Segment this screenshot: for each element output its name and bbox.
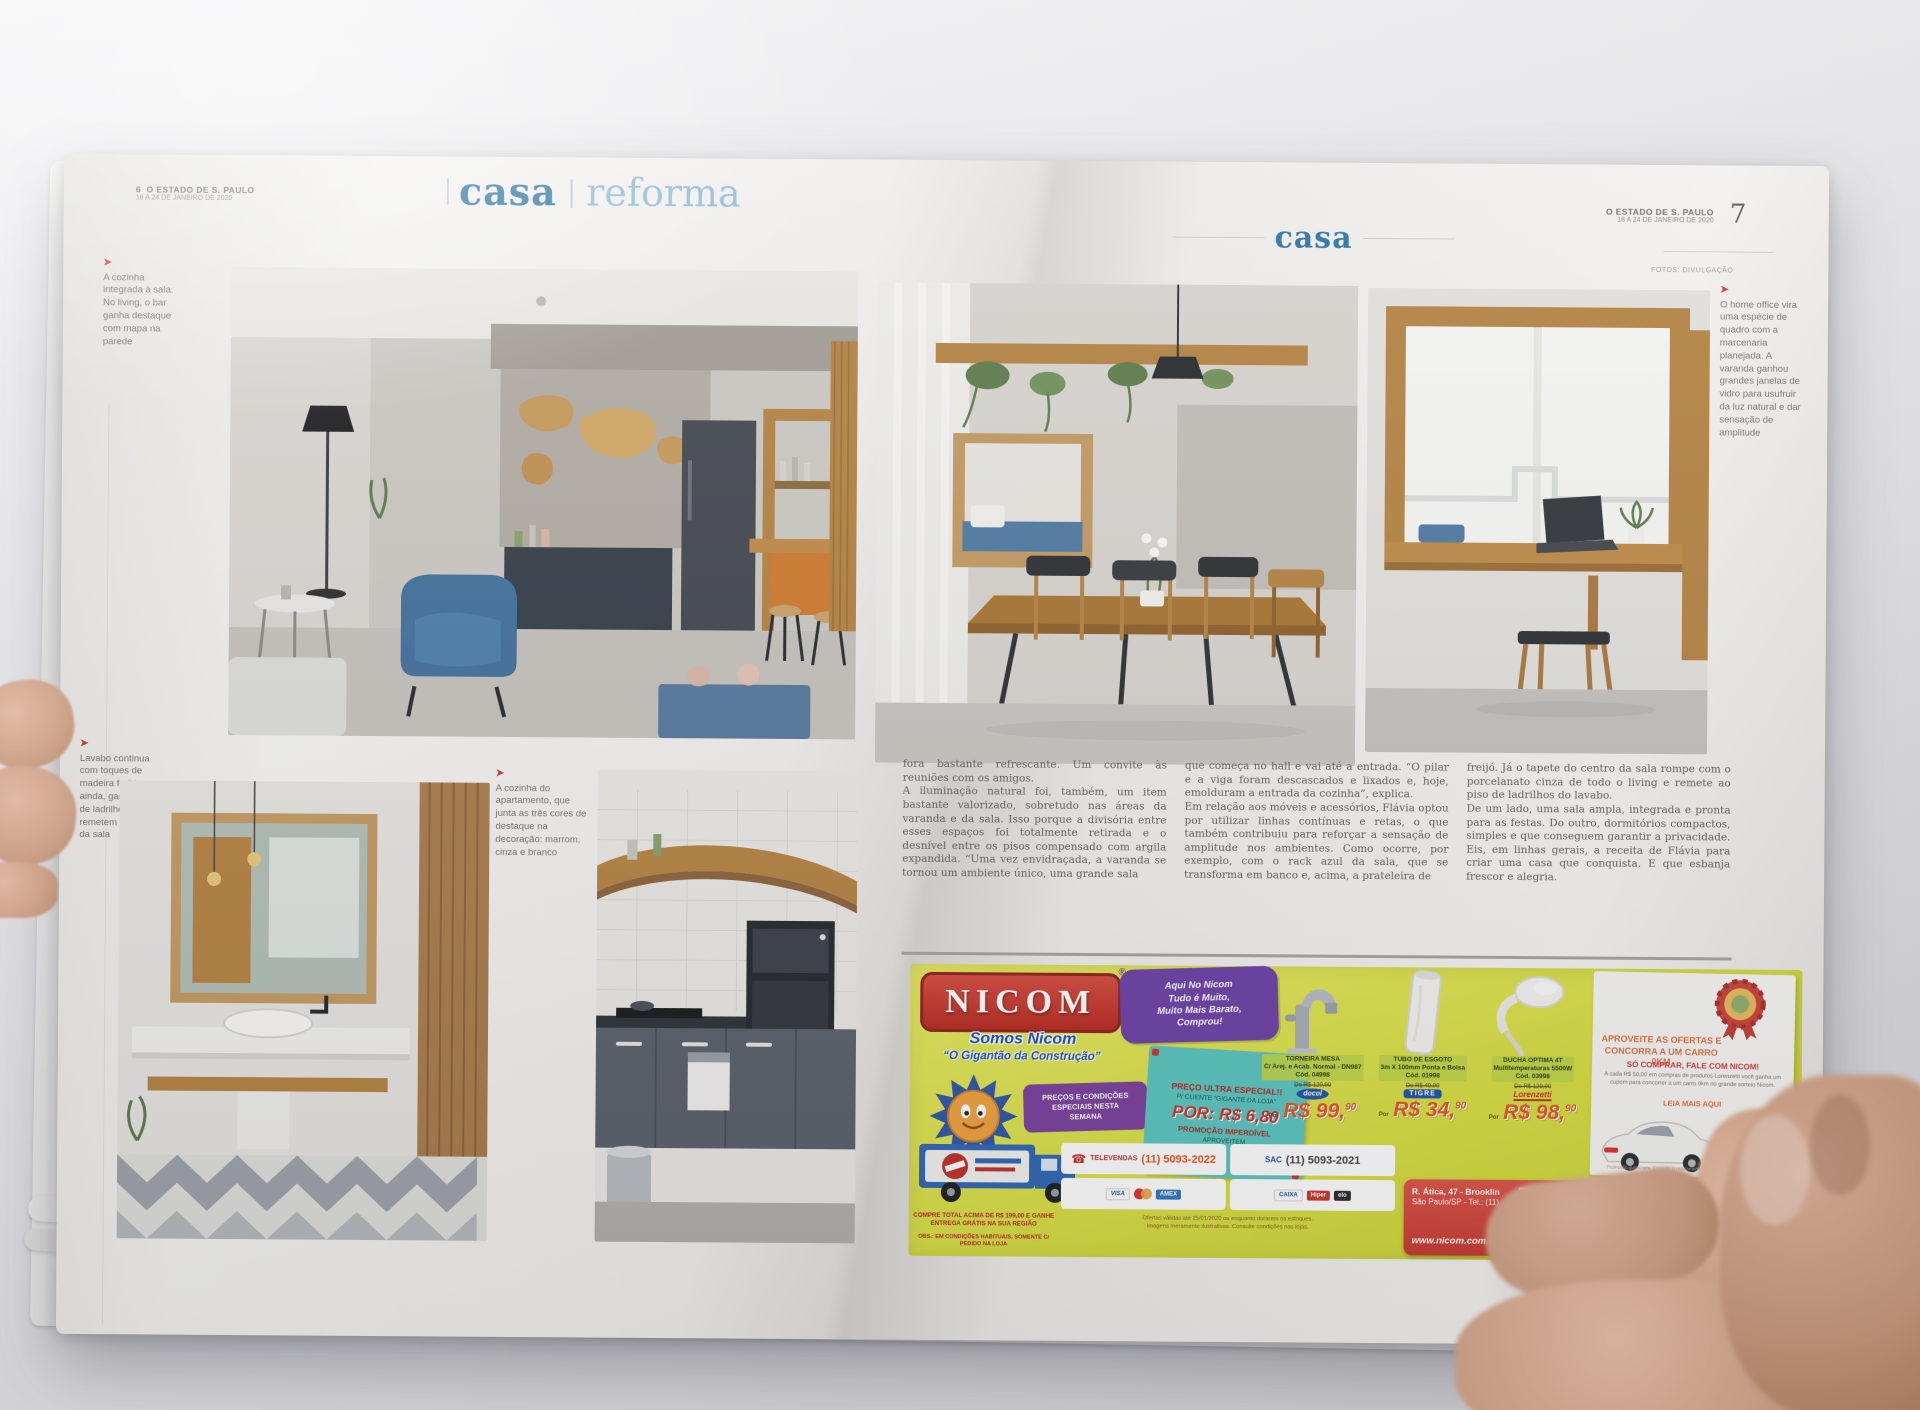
shower-image	[1483, 970, 1584, 1057]
refrigerator	[681, 420, 756, 633]
mastercard-logo	[1134, 1188, 1152, 1199]
left-folio: 6 O ESTADO DE S. PAULO 18 A 24 DE JANEIR…	[136, 184, 356, 203]
price-torneira: R$ 99,90	[1283, 1100, 1356, 1124]
elo-logo: elo	[1334, 1190, 1351, 1200]
left-date: 18 A 24 DE JANEIRO DE 2020	[136, 194, 356, 203]
section-casa: casa	[1274, 220, 1352, 256]
ad-fine-print: Ofertas válidas até 25/01/2020 ou enquan…	[1061, 1215, 1395, 1232]
blue-cushion	[1418, 524, 1464, 542]
oven-column	[746, 921, 835, 1040]
cards-box-1: VISA AMEX	[1061, 1178, 1226, 1210]
televendas-box: ☎ TELEVENDAS (11) 5093-2022	[1061, 1143, 1226, 1175]
concrete-beam	[491, 324, 858, 372]
truck-note-1: COMPRE TOTAL ACIMA DE R$ 199,00 E GANHE …	[913, 1212, 1055, 1228]
caption-arrow-icon: ➤	[496, 767, 592, 781]
photo-credit: FOTOS: DIVULGAÇÃO	[1533, 266, 1733, 274]
caption-cozinha: ➤ A cozinha do apartamento, que junta as…	[495, 767, 592, 860]
header-rule	[1363, 238, 1455, 240]
console-cabinet	[504, 547, 673, 632]
left-margin-rule	[102, 404, 109, 1324]
tagline-somos-nicom: Somos Nicom	[938, 1030, 1108, 1049]
brand-docol: docol	[1296, 1089, 1329, 1100]
photo-bathroom	[117, 780, 490, 1241]
flyer-headline-3: SÓ COMPRAR, FALE COM NICOM!	[1596, 1059, 1790, 1072]
visa-logo: VISA	[1106, 1188, 1130, 1200]
pipe-image	[1373, 969, 1474, 1056]
photo-home-office	[1365, 288, 1710, 754]
pendant-cord	[1178, 285, 1179, 357]
brand-lorenzetti: Lorenzetti	[1513, 1090, 1551, 1101]
truck-note-2: OBS.: EM CONDIÇÕES HABITUAIS, SOMENTE C/…	[913, 1234, 1055, 1249]
mirror	[170, 813, 377, 1004]
section-casa: casa	[459, 169, 557, 215]
folio-rule	[1663, 251, 1773, 253]
header-rule	[1173, 237, 1265, 239]
towel	[237, 1091, 289, 1149]
flyer-headline-1: APROVEITE AS OFERTAS E	[1596, 1033, 1726, 1046]
article-column-1: fora bastante refrescante. Um convite às…	[902, 758, 1167, 883]
left-section-header: casa | reforma	[374, 168, 814, 216]
rosette-seal-icon	[1710, 976, 1769, 1041]
nicom-logo: NICOM	[920, 972, 1121, 1033]
right-date: 18 A 24 DE JANEIRO DE 2020	[1534, 216, 1714, 224]
sac-box: SAC (11) 5093-2021	[1230, 1144, 1395, 1176]
caption-home-office: ➤ O home office vira uma espécie de quad…	[1719, 283, 1808, 440]
product-ducha: DUCHA OPTIMA 4TMultitemperaturas 5500WCó…	[1481, 970, 1584, 1126]
phone-icon: ☎	[1071, 1151, 1086, 1165]
section-divider: |	[567, 175, 577, 208]
tagline-gigantao: “O Gigantão da Construção”	[912, 1050, 1132, 1064]
header-tick	[447, 178, 449, 204]
caption-arrow-icon: ➤	[1720, 283, 1808, 297]
caption-arrow-icon: ➤	[103, 256, 177, 270]
article-column-2: que começa no hall e vai até a entrada. …	[1184, 760, 1449, 885]
product-tubo: TUBO DE ESGOTO3m X 100mm Ponta e BolsaCó…	[1371, 969, 1474, 1125]
faucet-image	[1263, 968, 1364, 1055]
hipercard-logo: Hiper	[1307, 1190, 1330, 1200]
caixa-logo: CAIXA	[1274, 1189, 1303, 1201]
left-page-number: 6	[136, 184, 141, 194]
caption-top-left: ➤ A cozinha integrada à sala. No living,…	[103, 256, 178, 349]
right-page-number: 7	[1730, 199, 1747, 229]
right-section-header: casa	[1158, 219, 1468, 256]
article-divider-rule	[902, 952, 1732, 961]
photo-dining-room	[875, 283, 1358, 766]
photo-living-room	[228, 267, 858, 739]
photo-kitchen	[595, 770, 858, 1244]
window-niche-bench	[952, 433, 1093, 568]
left-hand	[0, 680, 93, 915]
speech-bubble: Aqui No Nicom Tudo é Muito, Muito Mais B…	[1119, 966, 1279, 1044]
photographed-newspaper-scene: 6 O ESTADO DE S. PAULO 18 A 24 DE JANEIR…	[0, 0, 1920, 1410]
sofa	[228, 657, 347, 736]
product-torneira: TORNEIRA MESAC/ Arej. e Acab. Normal - D…	[1261, 968, 1364, 1124]
product-offers: TORNEIRA MESAC/ Arej. e Acab. Normal - D…	[1261, 968, 1584, 1126]
bottom-right-hand	[1700, 1075, 1920, 1410]
promo-badge: PREÇOS E CONDIÇÕES ESPECIAIS NESTA SEMAN…	[1023, 1081, 1148, 1132]
cooktop	[616, 1008, 702, 1019]
amex-logo: AMEX	[1156, 1189, 1181, 1199]
wood-shelf	[148, 1076, 388, 1092]
article-column-3: freijó. Já o tapete do centro da sala ro…	[1466, 762, 1731, 887]
right-folio: O ESTADO DE S. PAULO 18 A 24 DE JANEIRO …	[1534, 206, 1714, 224]
pendant-lamp	[1152, 356, 1204, 378]
cards-box-2: CAIXA Hiper elo	[1230, 1179, 1395, 1211]
payment-strip: ☎ TELEVENDAS (11) 5093-2022 SAC (11) 509…	[1061, 1143, 1395, 1211]
article-body: fora bastante refrescante. Um convite às…	[902, 758, 1733, 887]
section-reforma: reforma	[586, 170, 741, 215]
patterned-floor	[117, 1154, 488, 1241]
brand-tigre: TIGRE	[1403, 1090, 1441, 1099]
